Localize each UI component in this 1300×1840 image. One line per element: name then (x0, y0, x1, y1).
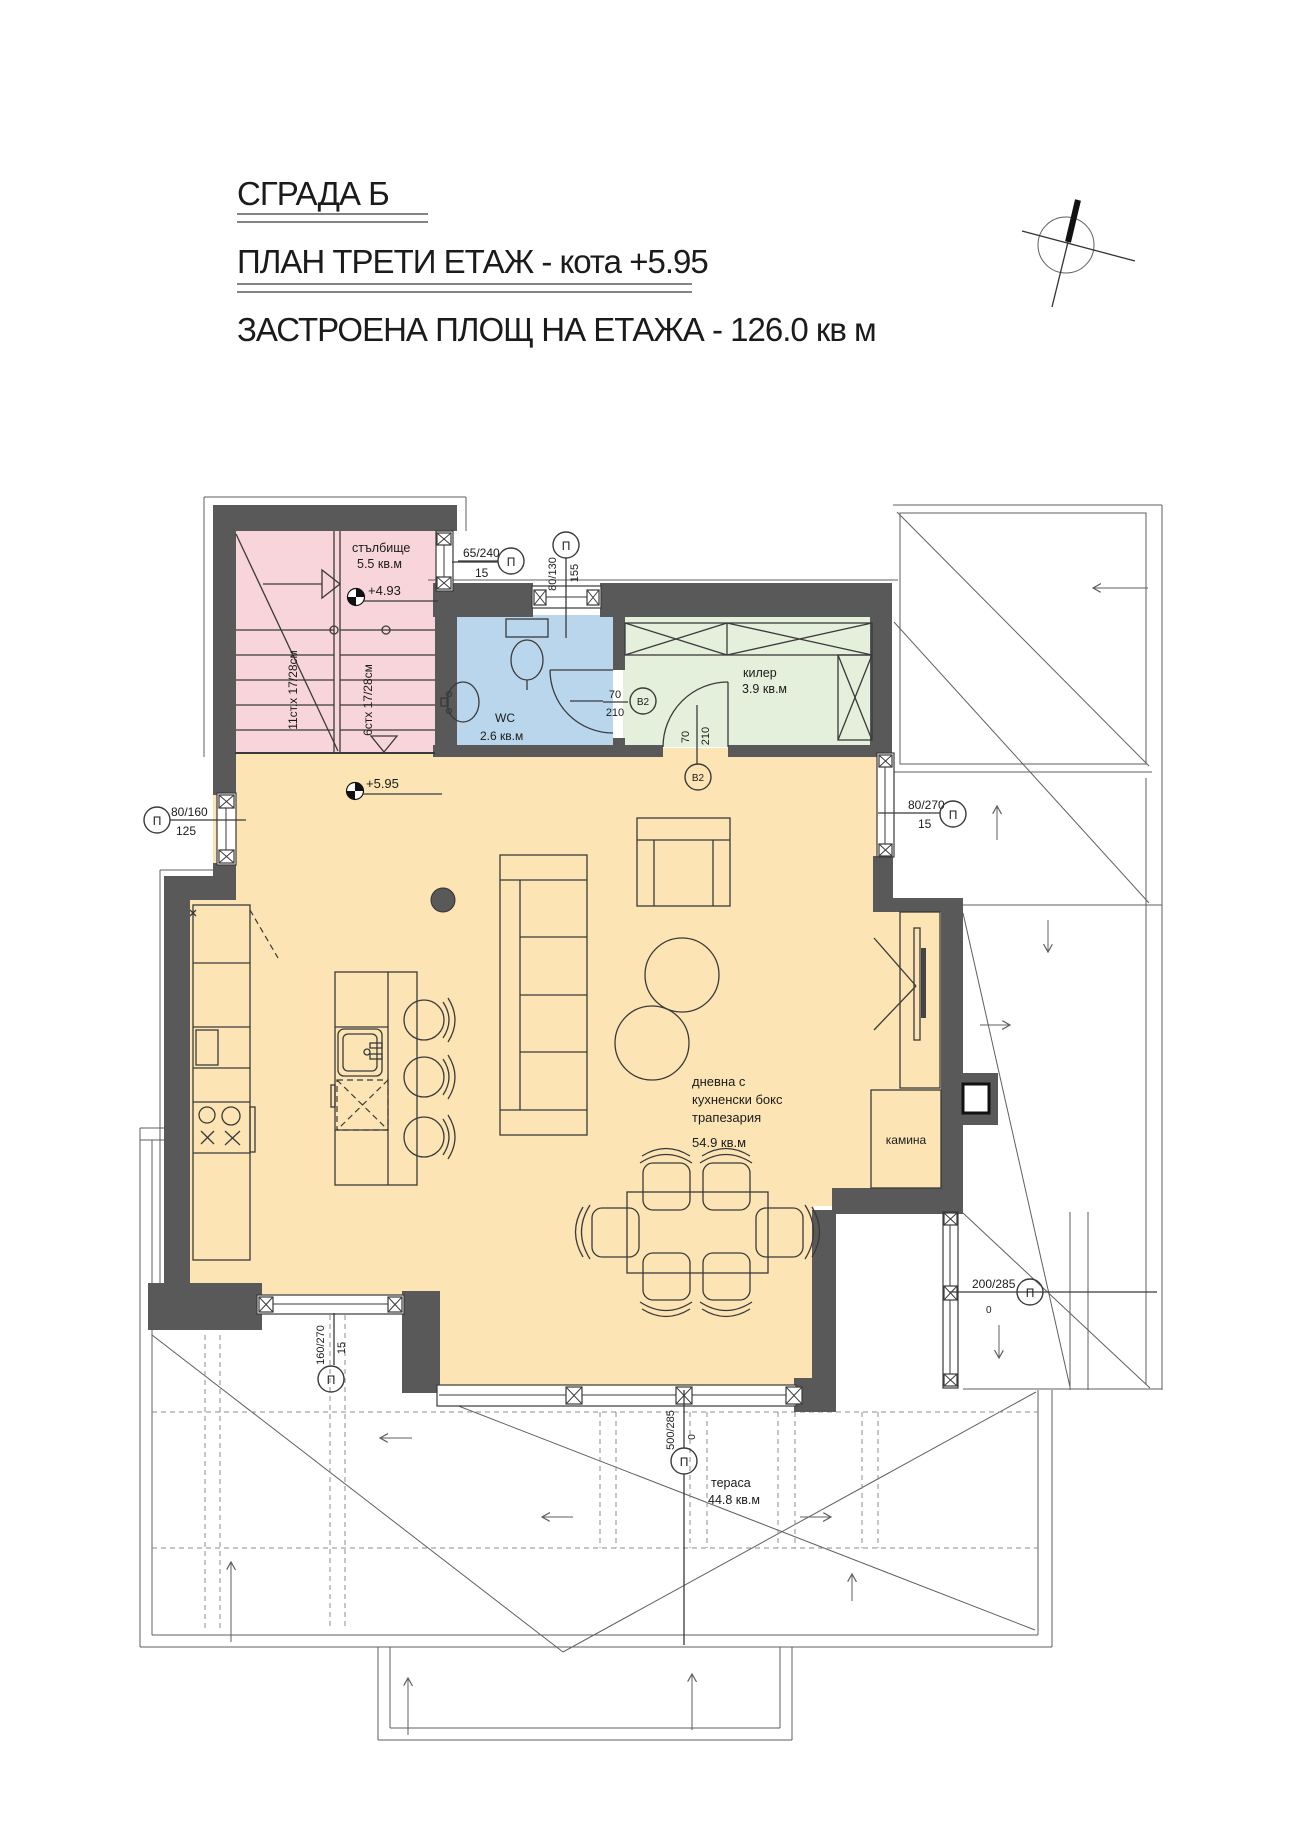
svg-text:П: П (949, 808, 958, 822)
wc-area: 2.6 кв.м (480, 729, 523, 743)
living-name-2: кухненски бокс (692, 1092, 783, 1107)
living-area: 54.9 кв.м (692, 1135, 746, 1150)
svg-text:П: П (507, 555, 516, 569)
svg-text:0: 0 (986, 1305, 992, 1316)
svg-text:65/240: 65/240 (463, 546, 500, 560)
svg-text:15: 15 (475, 566, 489, 580)
room-wc (455, 615, 613, 745)
svg-text:В2: В2 (637, 697, 650, 708)
svg-text:П: П (680, 1455, 689, 1469)
terrace-name: тераса (711, 1476, 751, 1490)
svg-text:155: 155 (569, 564, 581, 582)
wc-name: WC (495, 711, 515, 725)
svg-text:В2: В2 (692, 773, 705, 784)
svg-text:П: П (153, 814, 162, 828)
svg-text:80/130: 80/130 (547, 557, 559, 591)
svg-text:П: П (327, 1373, 336, 1387)
storage-area: 3.9 кв.м (742, 682, 787, 696)
svg-text:125: 125 (176, 824, 196, 838)
svg-text:160/270: 160/270 (315, 1325, 327, 1365)
storage-name: килер (743, 666, 777, 680)
stair-flight-short: 6стх 17/28см (361, 664, 375, 736)
svg-text:80/160: 80/160 (171, 805, 208, 819)
svg-text:200/285: 200/285 (972, 1277, 1016, 1291)
room-staircase (235, 531, 437, 753)
svg-text:+5.95: +5.95 (366, 776, 399, 791)
stair-flight-long: 11ст.х 17/28см (286, 650, 300, 730)
svg-text:80/270: 80/270 (908, 798, 945, 812)
svg-text:70: 70 (609, 689, 621, 701)
svg-text:70: 70 (680, 731, 692, 743)
window-65-240 (436, 531, 453, 591)
staircase-area: 5.5 кв.м (357, 557, 402, 571)
svg-text:П: П (1026, 1286, 1035, 1300)
column (431, 888, 455, 912)
north-symbol (1022, 200, 1135, 307)
svg-text:210: 210 (700, 727, 712, 745)
title-building: СГРАДА Б (237, 175, 389, 212)
staircase-name: стълбище (352, 541, 410, 555)
floor-plan-sheet: СГРАДА Б ПЛАН ТРЕТИ ЕТАЖ - кота +5.95 ЗА… (0, 0, 1300, 1840)
living-name-1: дневна с (692, 1074, 746, 1089)
header: СГРАДА Б ПЛАН ТРЕТИ ЕТАЖ - кота +5.95 ЗА… (237, 175, 876, 348)
fireplace-label: камина (886, 1133, 927, 1147)
svg-text:+4.93: +4.93 (368, 583, 401, 598)
window-160-270 (257, 1295, 404, 1314)
svg-text:500/285: 500/285 (665, 1410, 677, 1450)
window-500-285 (437, 1385, 802, 1406)
title-plan: ПЛАН ТРЕТИ ЕТАЖ - кота +5.95 (237, 243, 708, 280)
svg-text:15: 15 (336, 1342, 348, 1354)
svg-text:210: 210 (606, 707, 624, 719)
window-200-285 (943, 1212, 958, 1388)
svg-text:15: 15 (918, 817, 932, 831)
living-name-3: трапезария (692, 1110, 761, 1125)
svg-text:0: 0 (687, 1434, 698, 1440)
title-area: ЗАСТРОЕНА ПЛОЩ НА ЕТАЖА - 126.0 кв м (237, 311, 876, 348)
terrace-area: 44.8 кв.м (708, 1493, 760, 1507)
room-living (178, 748, 960, 1386)
window-80-270 (877, 753, 894, 857)
opening-p1: 65/240 15 П (452, 546, 524, 580)
floor-plan-drawing: СГРАДА Б ПЛАН ТРЕТИ ЕТАЖ - кота +5.95 ЗА… (0, 0, 1300, 1840)
window-80-160 (217, 793, 236, 865)
svg-text:П: П (562, 539, 571, 553)
opening-p4: 160/270 15 П (315, 1313, 348, 1392)
opening-p7: 500/285 0 П (665, 1390, 698, 1645)
chimney (955, 1073, 998, 1125)
opening-p6: 200/285 0 П (950, 1277, 1157, 1316)
